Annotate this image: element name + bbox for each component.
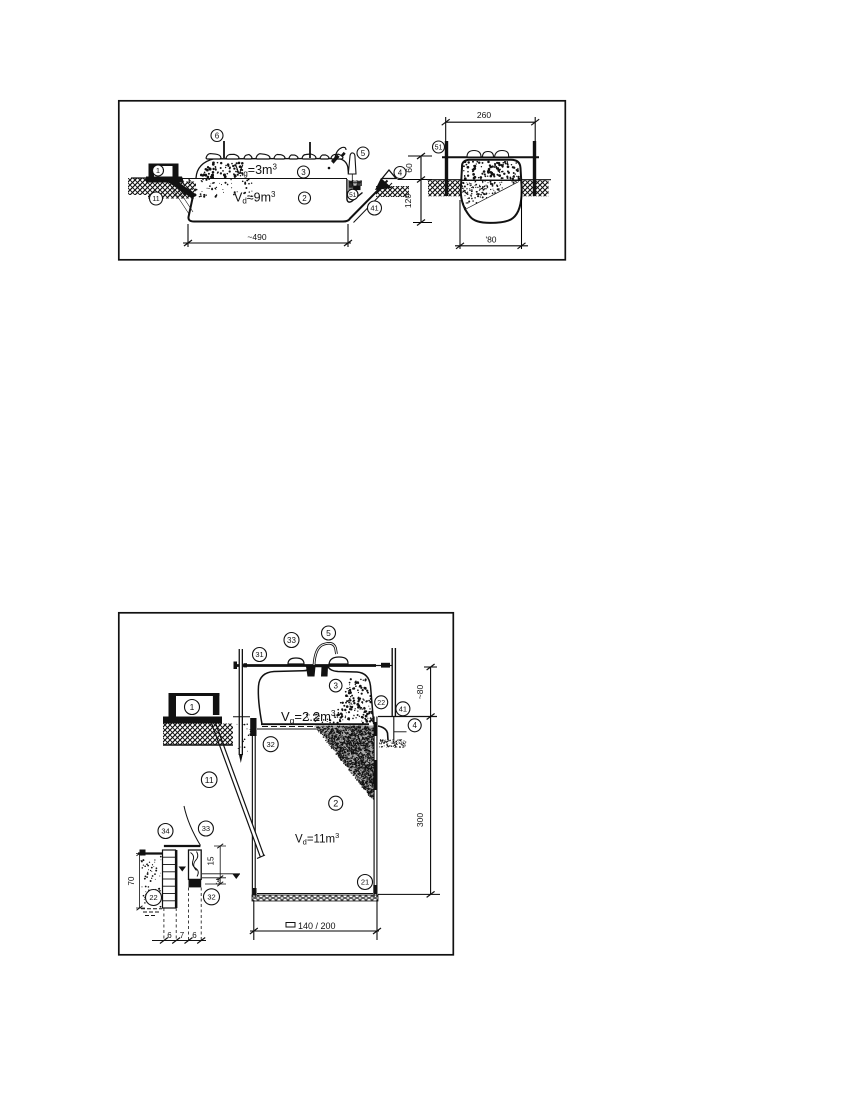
svg-text:32: 32 [267, 740, 275, 749]
svg-text:11: 11 [152, 196, 159, 203]
svg-text:3: 3 [333, 681, 338, 690]
svg-text:41: 41 [370, 204, 378, 213]
svg-text:2: 2 [333, 798, 338, 808]
svg-text:'80: '80 [485, 235, 496, 245]
svg-text:7: 7 [180, 931, 185, 940]
svg-text:5: 5 [361, 149, 366, 158]
svg-text:6: 6 [167, 931, 172, 940]
svg-text:~80: ~80 [415, 685, 425, 700]
svg-text:Vd≈9m3: Vd≈9m3 [234, 190, 276, 206]
svg-text:33: 33 [202, 824, 210, 833]
svg-text:3: 3 [216, 878, 221, 887]
svg-text:51: 51 [435, 145, 443, 152]
svg-text:34: 34 [161, 827, 169, 836]
svg-text:Vg=2.2m3: Vg=2.2m3 [281, 708, 336, 726]
svg-text:32: 32 [207, 893, 215, 902]
svg-text:6: 6 [192, 931, 197, 940]
svg-text:1: 1 [156, 166, 160, 175]
svg-text:41: 41 [399, 705, 407, 714]
svg-text:70: 70 [127, 876, 136, 885]
svg-text:Vg=3m3: Vg=3m3 [235, 163, 277, 179]
svg-text:60: 60 [404, 163, 414, 173]
svg-text:21: 21 [361, 878, 369, 887]
svg-text:31: 31 [255, 650, 263, 659]
svg-text:6: 6 [215, 131, 220, 140]
svg-text:3: 3 [301, 168, 306, 177]
svg-text:5: 5 [326, 628, 331, 638]
svg-text:22: 22 [149, 893, 157, 902]
svg-text:22: 22 [377, 700, 385, 707]
svg-text:140 / 200: 140 / 200 [298, 921, 336, 931]
svg-text:~490: ~490 [247, 232, 266, 242]
svg-text:260: 260 [477, 110, 491, 120]
svg-text:1: 1 [190, 702, 195, 712]
svg-text:51: 51 [349, 192, 357, 199]
svg-text:300: 300 [415, 813, 425, 827]
svg-text:15: 15 [207, 856, 216, 865]
svg-text:2: 2 [302, 194, 307, 203]
svg-text:Vd=11m3: Vd=11m3 [295, 831, 339, 847]
svg-text:33: 33 [287, 636, 296, 645]
svg-text:4: 4 [398, 168, 403, 177]
svg-text:120: 120 [403, 194, 413, 208]
svg-text:4: 4 [412, 721, 417, 730]
svg-text:11: 11 [205, 775, 214, 785]
